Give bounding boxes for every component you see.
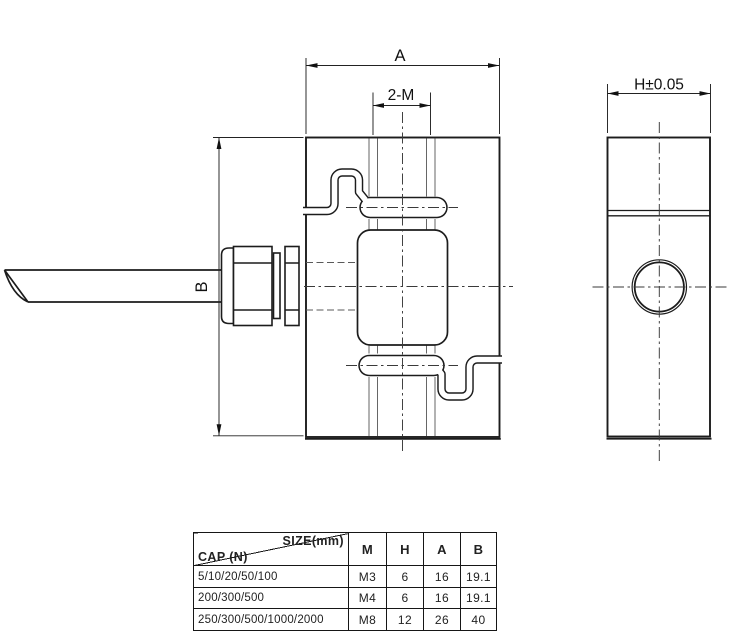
arrowhead (700, 91, 711, 96)
cable (5, 270, 222, 302)
table-row: 200/300/500 M4 6 16 19.1 (194, 588, 497, 609)
load-cell-drawing: A 2-M B H±0.05 SIZE(mm) CAP (N) M (0, 0, 737, 641)
cable-gland (222, 247, 300, 326)
gland-dome-nut (222, 248, 234, 324)
arrowhead (217, 424, 222, 436)
dim-b-label: B (193, 281, 211, 292)
arrowhead (306, 63, 318, 68)
gland-washer (274, 253, 281, 319)
arrowhead (217, 138, 222, 150)
gland-base (285, 247, 299, 326)
b-cell: 19.1 (461, 566, 497, 588)
size-header-label: SIZE(mm) (282, 534, 344, 548)
gland-body-nut (234, 247, 273, 326)
front-view (303, 112, 513, 453)
col-header-h: H (387, 533, 424, 566)
m-cell: M3 (349, 566, 387, 588)
arrowhead (608, 91, 619, 96)
b-cell: 19.1 (461, 588, 497, 609)
dim-thread-label: 2-M (388, 87, 415, 104)
spec-table: SIZE(mm) CAP (N) M H A B 5/10/20/50/100 … (193, 532, 497, 631)
side-view (593, 122, 728, 461)
cap-header-label: CAP (N) (198, 550, 248, 564)
table-header-row: SIZE(mm) CAP (N) M H A B (194, 533, 497, 566)
col-header-a: A (424, 533, 461, 566)
arrowhead (488, 63, 500, 68)
m-cell: M4 (349, 588, 387, 609)
cable-assembly (5, 247, 300, 326)
a-cell: 26 (424, 609, 461, 631)
col-header-m: M (349, 533, 387, 566)
dim-h-label: H±0.05 (634, 77, 684, 94)
dim-a-label: A (394, 47, 405, 65)
arrowhead (373, 103, 384, 108)
spec-table-grid: SIZE(mm) CAP (N) M H A B 5/10/20/50/100 … (193, 532, 497, 631)
cap-cell: 200/300/500 (194, 588, 349, 609)
table-row: 5/10/20/50/100 M3 6 16 19.1 (194, 566, 497, 588)
cap-cell: 250/300/500/1000/2000 (194, 609, 349, 631)
h-cell: 6 (387, 566, 424, 588)
b-cell: 40 (461, 609, 497, 631)
h-cell: 12 (387, 609, 424, 631)
a-cell: 16 (424, 566, 461, 588)
cable-cut-tip (5, 270, 29, 302)
cap-cell: 5/10/20/50/100 (194, 566, 349, 588)
a-cell: 16 (424, 588, 461, 609)
dimension-thread: 2-M (373, 87, 431, 135)
table-diagonal-header: SIZE(mm) CAP (N) (194, 533, 349, 566)
h-cell: 6 (387, 588, 424, 609)
col-header-b: B (461, 533, 497, 566)
m-cell: M8 (349, 609, 387, 631)
table-row: 250/300/500/1000/2000 M8 12 26 40 (194, 609, 497, 631)
arrowhead (420, 103, 431, 108)
